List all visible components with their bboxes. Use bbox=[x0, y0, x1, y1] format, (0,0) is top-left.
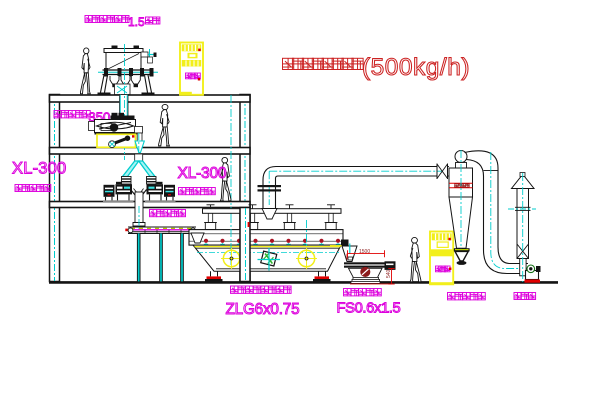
svg-text:XL-300: XL-300 bbox=[12, 160, 66, 178]
svg-text:(500kg/h): (500kg/h) bbox=[362, 54, 470, 81]
svg-text:ZLG6x0.75: ZLG6x0.75 bbox=[226, 301, 300, 318]
svg-text:1.5: 1.5 bbox=[128, 15, 145, 29]
svg-text:540: 540 bbox=[386, 269, 392, 278]
svg-text:FS0.6x1.5: FS0.6x1.5 bbox=[337, 301, 401, 317]
svg-text:1500: 1500 bbox=[359, 249, 370, 255]
svg-text:XL-300: XL-300 bbox=[178, 165, 227, 182]
